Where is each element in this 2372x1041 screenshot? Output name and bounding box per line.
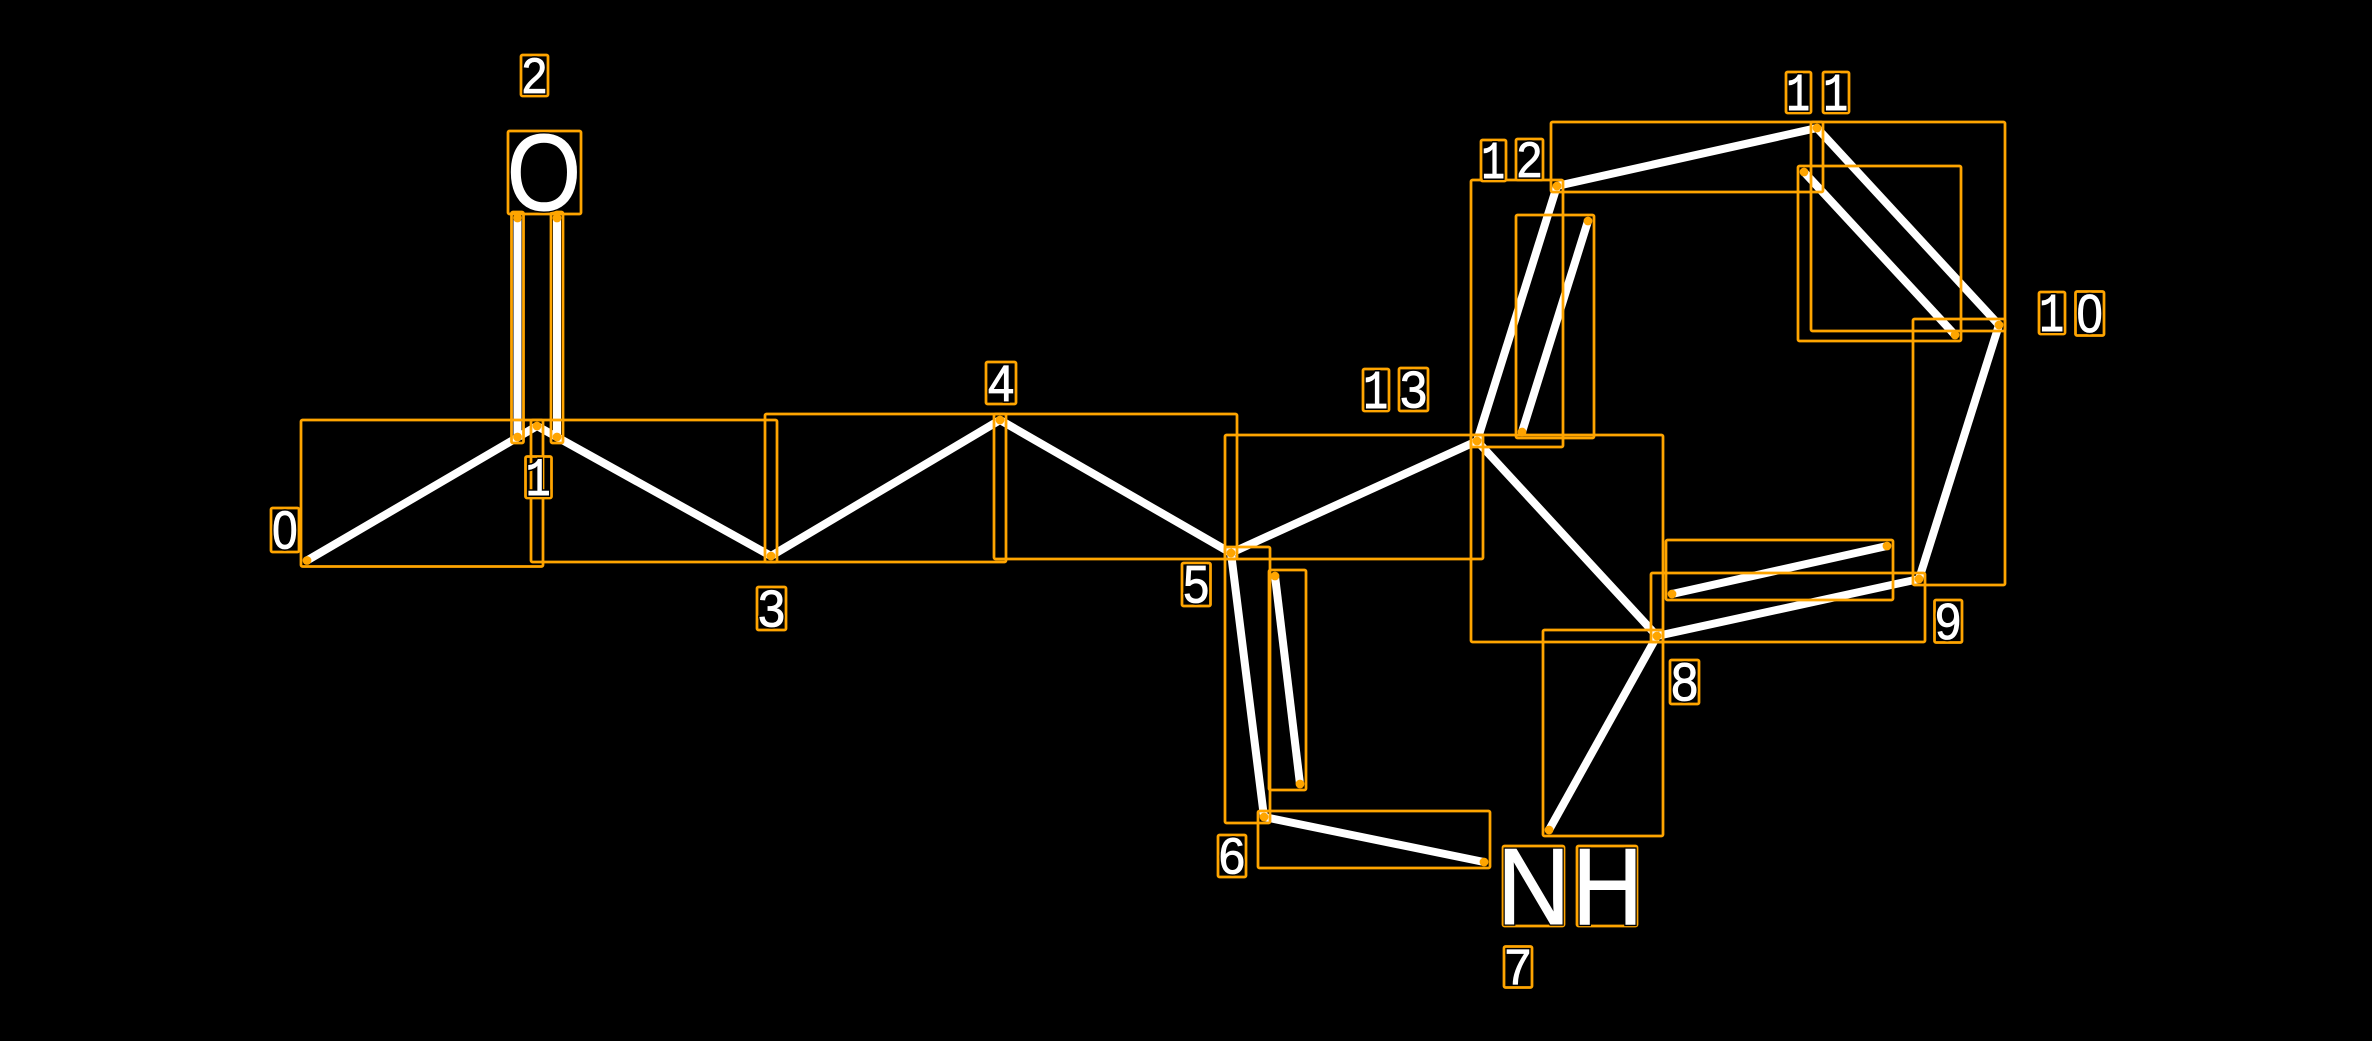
- svg-text:2: 2: [1517, 133, 1542, 188]
- svg-text:1: 1: [2039, 286, 2064, 348]
- svg-text:5: 5: [1183, 555, 1209, 614]
- svg-text:2: 2: [522, 49, 547, 104]
- svg-text:1: 1: [1786, 67, 1810, 127]
- svg-text:3: 3: [1400, 360, 1427, 419]
- svg-text:8: 8: [1671, 652, 1698, 711]
- svg-text:1: 1: [1823, 67, 1848, 127]
- svg-text:1: 1: [1363, 363, 1388, 425]
- svg-text:O: O: [507, 111, 581, 233]
- svg-text:1: 1: [526, 451, 551, 511]
- svg-text:3: 3: [758, 579, 785, 638]
- svg-text:0: 0: [2077, 283, 2103, 344]
- svg-text:7: 7: [1505, 941, 1532, 996]
- svg-text:4: 4: [988, 355, 1014, 412]
- svg-text:0: 0: [272, 500, 297, 560]
- svg-text:H: H: [1572, 825, 1643, 947]
- svg-text:N: N: [1497, 827, 1571, 948]
- svg-text:1: 1: [1481, 135, 1505, 195]
- svg-text:9: 9: [1935, 594, 1961, 651]
- svg-text:6: 6: [1219, 828, 1246, 885]
